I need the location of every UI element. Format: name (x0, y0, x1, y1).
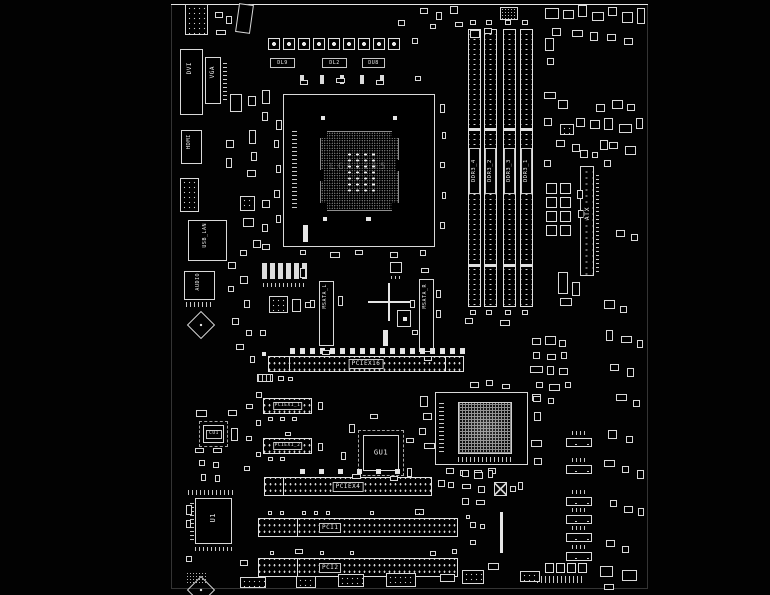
pad (572, 545, 586, 549)
pad (400, 348, 405, 354)
choke-row (268, 38, 400, 50)
sata-connector[interactable] (566, 552, 592, 561)
smd (383, 330, 388, 346)
pad (450, 348, 455, 354)
atx-power-connector[interactable]: ATX (580, 166, 594, 276)
smd-cluster (546, 183, 571, 236)
pad (460, 348, 465, 354)
choke (358, 38, 370, 50)
smd-cluster (545, 563, 587, 573)
smd (546, 211, 557, 222)
pad-row (290, 348, 465, 354)
pch-pads (458, 457, 512, 462)
atx-label: ATX (584, 207, 591, 220)
sata-connector[interactable] (566, 465, 592, 474)
socket-dot (321, 116, 325, 120)
msata-l-label: MSATA_L (323, 284, 328, 309)
socket-center-pads (344, 150, 376, 194)
pad (420, 348, 425, 354)
slot-key (283, 478, 284, 495)
pad (572, 458, 586, 462)
socket-notch (319, 203, 327, 211)
choke (388, 38, 400, 50)
pciex1-2-label: PCIEX1_2 (273, 442, 303, 450)
gu1-chip[interactable]: GU1 (363, 435, 399, 471)
smd (560, 211, 571, 222)
dvi-label: DVI (187, 62, 193, 74)
pad (376, 469, 381, 474)
ddr3-slot-1-label: DDR3_1 (521, 148, 532, 194)
pad (340, 348, 345, 354)
pciex16-slot[interactable]: PCIEX16 (268, 356, 464, 372)
designator-dl9[interactable]: DL9 (270, 58, 295, 68)
smd (269, 296, 288, 313)
vga-label: VGA (210, 66, 216, 78)
pad (310, 348, 315, 354)
capacitor (320, 75, 324, 84)
pad (572, 431, 586, 435)
capacitor (262, 263, 267, 279)
pciex4-slot[interactable]: PCIEX4 (264, 477, 432, 496)
sata-connector[interactable] (566, 438, 592, 447)
cu1-label: CU1 (206, 430, 222, 439)
choke (373, 38, 385, 50)
audio-connector[interactable]: AUDIO (184, 271, 215, 300)
header-pins (537, 576, 583, 583)
pad (430, 348, 435, 354)
choke (343, 38, 355, 50)
ddr3-slot-3[interactable]: DDR3_3 (503, 29, 516, 307)
pch-bga[interactable] (458, 402, 512, 454)
pad (300, 348, 305, 354)
pad (338, 469, 343, 474)
sata-connector[interactable] (566, 515, 592, 524)
capacitor (278, 263, 283, 279)
pad (410, 348, 415, 354)
hdmi-label: HDMI (187, 134, 193, 149)
vga-pins (223, 60, 227, 100)
smd (546, 183, 557, 194)
pci1-label: PCI1 (319, 523, 341, 533)
pad (350, 348, 355, 354)
pciex1-1-slot[interactable]: PCIEX1_1 (263, 398, 312, 414)
pad (290, 348, 295, 354)
smd (186, 302, 212, 307)
smd (546, 225, 557, 236)
socket-dot (366, 217, 371, 221)
pciex1-2-slot[interactable]: PCIEX1_2 (263, 438, 312, 454)
rear-usb-connector[interactable] (180, 178, 199, 212)
choke (298, 38, 310, 50)
capacitor (360, 75, 364, 84)
ddr3-slot-1[interactable]: DDR3_1 (520, 29, 533, 307)
cu1-chip[interactable]: CU1 (203, 425, 224, 443)
pad (370, 348, 375, 354)
capacitor (286, 263, 291, 279)
pciex1-1-label: PCIEX1_1 (273, 402, 303, 410)
pciex16-label: PCIEX16 (349, 359, 384, 369)
choke (283, 38, 295, 50)
probe-dot (403, 317, 407, 321)
pad (572, 508, 586, 512)
slot-key (297, 559, 298, 576)
ddr3-slot-2-label: DDR3_2 (485, 148, 496, 194)
pad (319, 469, 324, 474)
slot-key (445, 357, 446, 371)
choke (268, 38, 280, 50)
boardview-canvas: DVI VGA HDMI USB_LAN AUDIO DL9 DL2 DU8 L… (0, 0, 770, 595)
atx-pins (596, 172, 599, 272)
smd (263, 283, 307, 287)
pad (395, 469, 400, 474)
pciex4-label: PCIEX4 (333, 482, 364, 492)
sata-connector[interactable] (566, 533, 592, 542)
crosshair (388, 283, 390, 321)
pad (572, 490, 586, 494)
smd (556, 563, 565, 573)
pad (440, 348, 445, 354)
socket-dot (323, 217, 327, 221)
pci2-label: PCI2 (319, 563, 341, 573)
u1-label: U1 (210, 513, 217, 522)
audio-label: AUDIO (196, 273, 201, 291)
ddr3-slot-3-label: DDR3_3 (504, 148, 515, 194)
pch-pads (439, 402, 444, 452)
choke (328, 38, 340, 50)
smd (560, 183, 571, 194)
smd (560, 197, 571, 208)
pad (300, 469, 305, 474)
u1-pads (188, 490, 236, 495)
vga-connector[interactable]: VGA (205, 57, 221, 104)
slot-key (297, 519, 298, 536)
pad (330, 348, 335, 354)
pad-row (300, 469, 400, 474)
slot-key (289, 357, 290, 371)
smd (545, 563, 554, 573)
hdmi-connector[interactable]: HDMI (181, 130, 202, 164)
smd (292, 299, 301, 312)
socket-notch (392, 130, 400, 138)
designator-du8[interactable]: DU8 (362, 58, 385, 68)
pad (390, 348, 395, 354)
msata-r-label: MSATA_R (423, 284, 428, 309)
pad (360, 348, 365, 354)
choke (313, 38, 325, 50)
gu1-label: GU1 (364, 450, 398, 457)
ddr3-slot-4[interactable]: DDR3_4 (468, 29, 481, 307)
crystal-x3[interactable] (494, 482, 507, 496)
dvi-connector[interactable]: DVI (180, 49, 203, 115)
smd (500, 512, 503, 553)
sata-connector[interactable] (566, 497, 592, 506)
smd (303, 225, 308, 242)
msata-r-connector[interactable]: MSATA_R (419, 279, 434, 352)
u1-chip[interactable]: U1 (195, 498, 232, 544)
smd (567, 563, 576, 573)
smd (546, 197, 557, 208)
ddr3-slot-4-label: DDR3_4 (469, 148, 480, 194)
socket-notch (392, 203, 400, 211)
capacitor (270, 263, 275, 279)
capacitor (294, 263, 299, 279)
pci1-slot[interactable]: PCI1 (258, 518, 458, 537)
socket-notch (319, 130, 327, 138)
u1-pads (195, 547, 232, 551)
usb-lan-connector[interactable]: USB_LAN (188, 220, 227, 261)
smd (578, 563, 587, 573)
pad (380, 348, 385, 354)
socket-name-label: LGA1155 (283, 162, 435, 172)
smd (560, 225, 571, 236)
ps2-connector[interactable] (185, 4, 208, 35)
usb-lan-label: USB_LAN (203, 223, 208, 248)
msata-l-connector[interactable]: MSATA_L (319, 281, 334, 346)
designator-dl2[interactable]: DL2 (322, 58, 347, 68)
socket-dot (393, 116, 397, 120)
ddr3-slot-2[interactable]: DDR3_2 (484, 29, 497, 307)
pad (572, 526, 586, 530)
